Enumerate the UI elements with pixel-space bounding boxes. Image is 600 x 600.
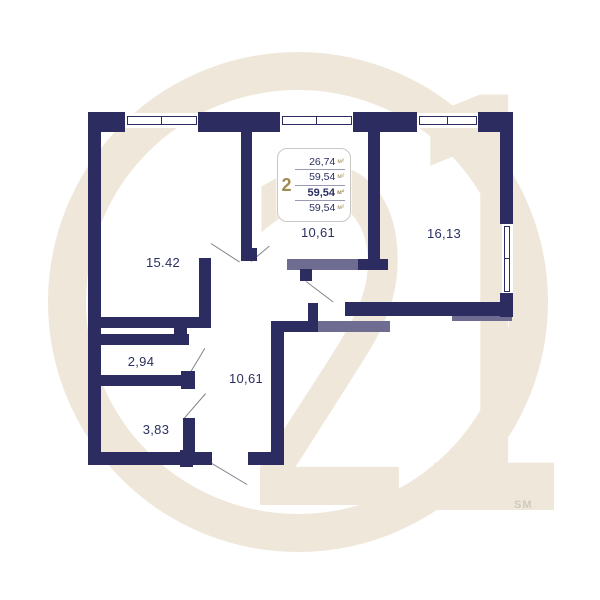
wall-storage-top (96, 334, 189, 345)
floorplan-canvas: 2 1 (0, 0, 600, 600)
wall-kitchen-bottom-shared (287, 259, 362, 270)
trademark-sm: SM (514, 499, 533, 511)
window-1-frame (127, 116, 197, 125)
window-right-frame (504, 226, 510, 292)
vent-stub-kitchen (300, 269, 312, 281)
wall-kitchen-living (368, 128, 380, 259)
wall-hallway-top-shared (318, 321, 390, 332)
wall-storage-bottom (96, 375, 181, 386)
wall-bedroom-bottom (96, 317, 211, 328)
apartment-info-card: 2 26,74 м² 59,54 м² 59,54 м² 59,54 м² (277, 148, 351, 222)
wall-kitchen-living-foot (368, 259, 388, 270)
area-unit: м² (337, 204, 344, 211)
wall-bedroom-kitchen (241, 132, 252, 248)
window-3-mullion (447, 116, 448, 125)
room-label-living: 16,13 (412, 226, 476, 241)
wall-bedroom-kitchen-jamb (241, 248, 257, 261)
storage-door-jamb (181, 371, 195, 389)
area-row-2: 59,54 м² (295, 170, 345, 186)
area-row-4: 59,54 м² (295, 201, 345, 216)
wall-living-bottom (345, 302, 512, 316)
wall-hallway-top (284, 321, 318, 332)
room-label-hallway: 10,61 (214, 371, 278, 386)
window-2-frame (282, 116, 352, 125)
room-label-bedroom: 15.42 (131, 255, 195, 270)
wall-top-2 (198, 112, 280, 132)
area-row-3-total: 59,54 м² (295, 186, 345, 202)
window-3-frame (419, 116, 477, 125)
room-label-bathroom: 3,83 (124, 422, 188, 437)
wall-left (88, 132, 101, 465)
area-value: 59,54 (307, 187, 335, 199)
room-label-kitchen: 10,61 (286, 225, 350, 240)
wall-top-3 (353, 112, 417, 132)
wall-right-upper (500, 132, 513, 224)
area-row-1: 26,74 м² (295, 155, 345, 171)
area-value: 59,54 (309, 202, 335, 214)
window-1-mullion (161, 116, 162, 125)
area-unit: м² (337, 158, 344, 165)
window-2-mullion (316, 116, 317, 125)
rooms-count: 2 (278, 175, 295, 196)
area-value: 26,74 (309, 156, 335, 168)
area-unit: м² (337, 189, 344, 196)
watermark-digit-1: 1 (399, 0, 580, 600)
window-right-mullion (504, 258, 510, 259)
area-value: 59,54 (309, 171, 335, 183)
wall-top-4 (478, 112, 513, 132)
wall-hallway-right (271, 321, 284, 465)
wall-top-1 (88, 112, 125, 132)
vent-stub-hallway (308, 303, 318, 322)
area-unit: м² (337, 173, 344, 180)
room-label-storage: 2,94 (109, 354, 173, 369)
